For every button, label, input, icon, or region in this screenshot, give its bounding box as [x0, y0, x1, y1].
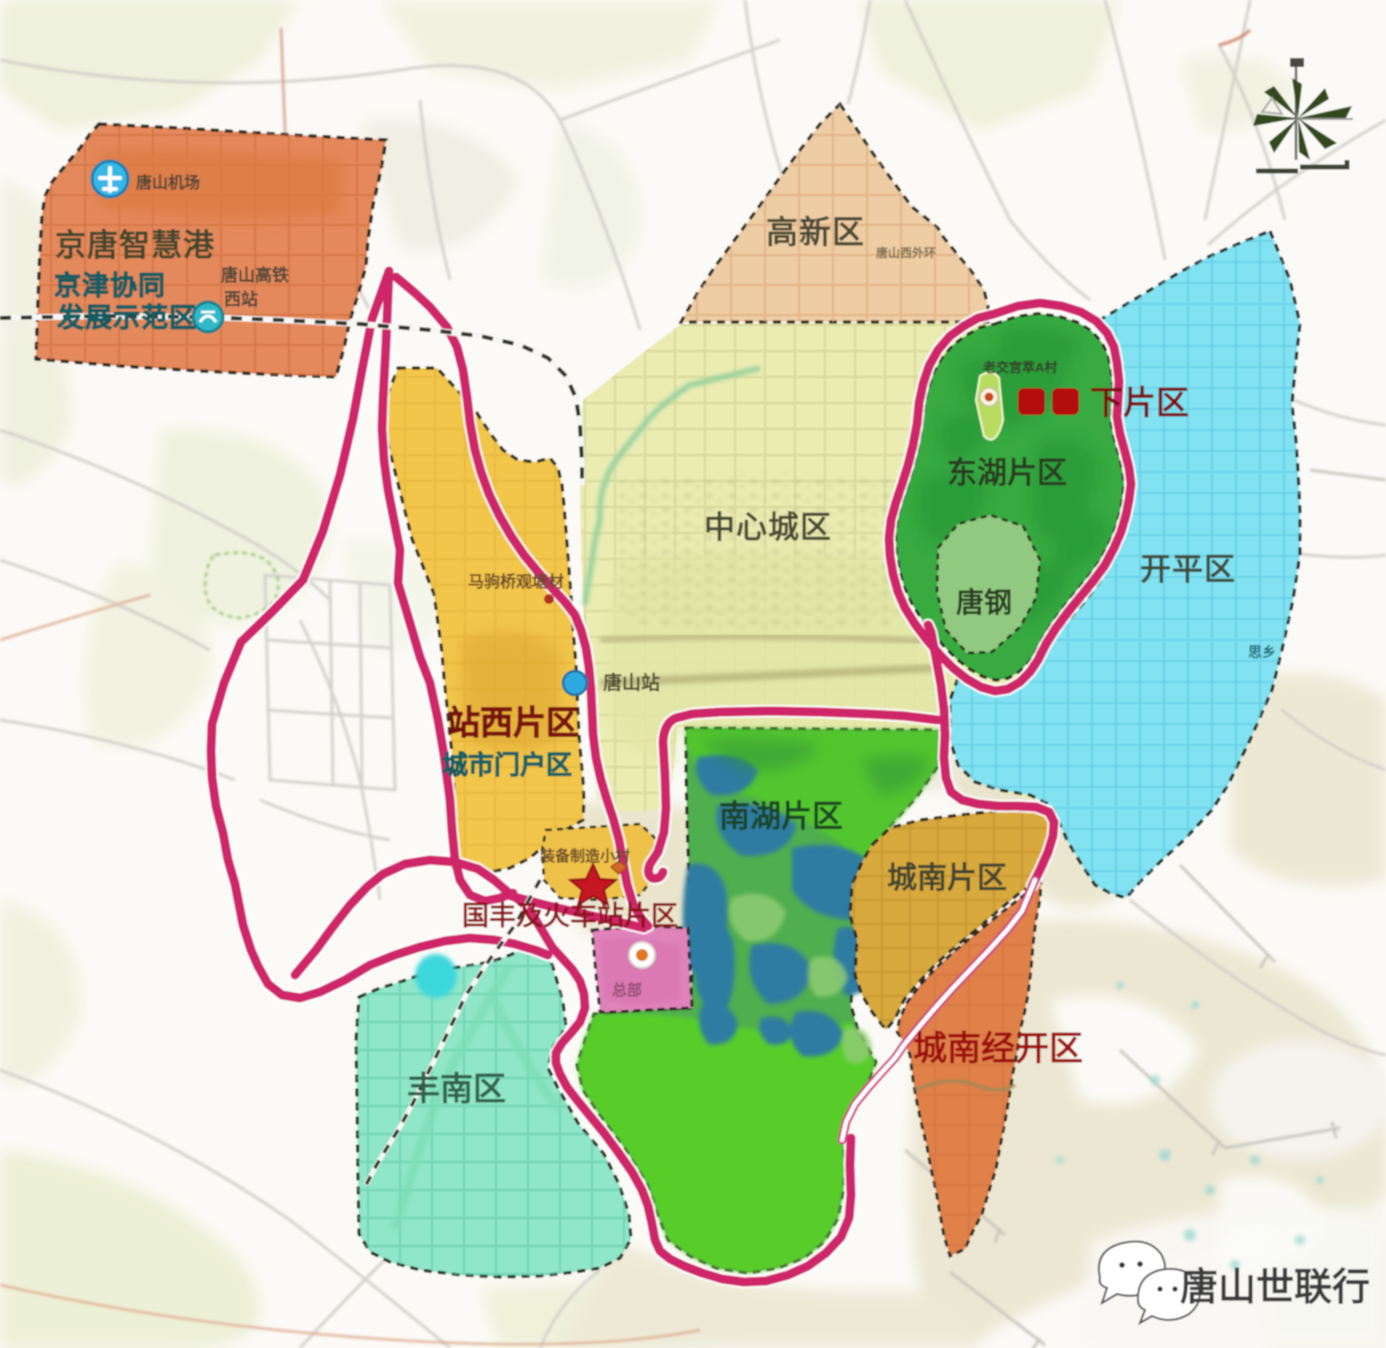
- svg-text:城市门户区: 城市门户区: [442, 750, 572, 780]
- svg-text:唐山世联行: 唐山世联行: [1180, 1266, 1370, 1309]
- svg-text:发展示范区: 发展示范区: [56, 302, 197, 333]
- svg-text:中心城区: 中心城区: [704, 510, 832, 545]
- svg-text:城南经开区: 城南经开区: [913, 1030, 1083, 1068]
- svg-text:西站: 西站: [224, 289, 258, 309]
- svg-text:城南片区: 城南片区: [887, 862, 1007, 895]
- svg-text:总部: 总部: [612, 981, 642, 999]
- svg-text:下片区: 下片区: [1090, 384, 1189, 421]
- svg-text:国丰及火车站片区: 国丰及火车站片区: [462, 900, 678, 931]
- svg-text:京唐智慧港: 京唐智慧港: [55, 228, 215, 263]
- svg-text:唐山高铁: 唐山高铁: [221, 265, 289, 285]
- svg-text:思乡: 思乡: [1248, 644, 1276, 660]
- svg-text:东湖片区: 东湖片区: [947, 456, 1067, 490]
- svg-text:开平区: 开平区: [1140, 552, 1236, 587]
- svg-text:装备制造小村: 装备制造小村: [539, 847, 630, 865]
- svg-text:唐钢: 唐钢: [956, 586, 1012, 618]
- svg-text:唐山西外环: 唐山西外环: [876, 245, 936, 260]
- svg-text:老交宫萃A村: 老交宫萃A村: [982, 360, 1057, 375]
- svg-text:南湖片区: 南湖片区: [719, 799, 843, 834]
- svg-text:唐山机场: 唐山机场: [136, 173, 200, 192]
- svg-text:丰南区: 丰南区: [407, 1070, 506, 1107]
- svg-text:马驹桥观塘材: 马驹桥观塘材: [468, 572, 564, 591]
- svg-text:京津协同: 京津协同: [54, 270, 166, 301]
- svg-text:唐山站: 唐山站: [603, 671, 660, 694]
- svg-text:高新区: 高新区: [766, 214, 865, 250]
- svg-text:站西片区: 站西片区: [447, 704, 579, 741]
